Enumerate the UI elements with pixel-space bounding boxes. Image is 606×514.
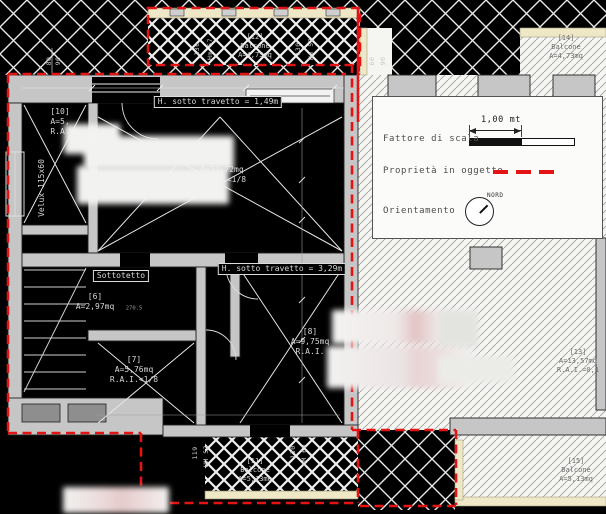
balcony-11-dim-hm60: HM 60 <box>300 444 308 466</box>
dim-90-mid: 90 <box>379 57 387 66</box>
legend-property-label: Proprietà in oggetto <box>383 166 503 176</box>
red-dash-icon <box>516 170 531 174</box>
balcony-12-dim-130-right: 130 <box>294 42 302 55</box>
h-travetto-label-1: H. sotto travetto = 1,49m <box>154 96 282 108</box>
redaction-blur-3 <box>77 166 229 204</box>
room-8-ra: R.A.I. <box>291 347 330 357</box>
room-8-label: [8] A=9,75mq R.A.I. <box>291 327 330 357</box>
room-10-id: [10] <box>50 107 69 117</box>
room-6-label: [6] A=2,97mq <box>76 292 115 312</box>
dim-80: 80 <box>45 57 53 66</box>
balcony-11-label: [11] Balcone A=5,13mq <box>238 457 272 483</box>
balcony-11-area <box>205 437 358 499</box>
red-dash-icon <box>493 170 508 174</box>
legend-scale-arrow <box>469 130 521 131</box>
balcony-14-label: [14] Balcone A=4,73mq <box>549 34 583 60</box>
room-13-id: [13] <box>557 348 599 357</box>
balcony-14-id: [14] <box>549 34 583 43</box>
arrow-right-icon <box>514 128 521 134</box>
balcony-12-label: [12] Balcone A=4,73mq <box>238 33 272 59</box>
redaction-blur-8 <box>63 487 169 513</box>
scale-bar <box>469 138 575 146</box>
legend-scale-label: Fattore di scala <box>383 134 479 144</box>
balcony-11-area: A=5,13mq <box>238 474 272 483</box>
wall-dimension-label: 270.5 <box>126 306 143 313</box>
balcony-12-name: Balcone <box>238 42 272 51</box>
legend-extension-tick-right <box>521 125 522 137</box>
balcony-11-dim-119: 119 <box>191 446 199 459</box>
sottotetto-label: Sottotetto <box>93 270 149 282</box>
h-travetto-label-2: H. sotto travetto = 3,29m <box>218 263 346 275</box>
legend-panel: 1,00 mt Fattore di scala Proprietà in og… <box>372 96 603 239</box>
redaction-blur-7 <box>438 356 514 383</box>
balcony-15-name: Balcone <box>559 466 593 475</box>
balcony-15-area: A=5,13mq <box>559 474 593 483</box>
floor-plan-screenshot: [10] A=5, R.A. Velux 115x60 80 90 H. sot… <box>0 0 606 514</box>
balcony-12-area: A=4,73mq <box>238 50 272 59</box>
balcony-15-label: [15] Balcone A=5,13mq <box>559 457 593 483</box>
room-7-area: A=5,76mq <box>110 365 158 375</box>
compass-icon <box>465 197 494 226</box>
terrace-crosshatch <box>358 430 455 510</box>
room-8-id: [8] <box>291 327 330 337</box>
room-13-label: [13] A=13,57mq R.A.I.=0,1 <box>557 348 599 374</box>
red-dash-icon <box>539 170 554 174</box>
balcony-14-name: Balcone <box>549 43 583 52</box>
dim-60: 60 <box>368 57 376 66</box>
compass-needle <box>479 204 488 213</box>
legend-red-dash-sample <box>493 170 554 174</box>
legend-scale-value: 1,00 mt <box>481 115 521 125</box>
balcony-12-id: [12] <box>238 33 272 42</box>
room-7-ra: R.A.I.<1/8 <box>110 375 158 385</box>
redaction-blur-6 <box>438 311 478 347</box>
room-6-area: A=2,97mq <box>76 302 115 312</box>
legend-north-label: NORD <box>487 192 503 199</box>
velux-label: Velux 115x60 <box>37 159 47 217</box>
balcony-11-id: [11] <box>238 457 272 466</box>
room-13-area: A=13,57mq <box>557 357 599 366</box>
balcony-11-name: Balcone <box>238 466 272 475</box>
legend-orientation-label: Orientamento <box>383 206 455 216</box>
room-8-area: A=9,75mq <box>291 337 330 347</box>
balcony-11-dim-hm53: HM 53 <box>202 445 210 467</box>
balcony-15-id: [15] <box>559 457 593 466</box>
room-13-ra: R.A.I.=0,1 <box>557 365 599 374</box>
balcony-11-dim-130: 130 <box>289 445 297 458</box>
dim-90-left: 90 <box>54 57 62 66</box>
balcony-12-dim-130-left: 130 <box>193 42 201 55</box>
arrow-left-icon <box>469 128 476 134</box>
floor-plan-drawing <box>0 0 606 514</box>
balcony-12-dim-hm57-right: Hm 57 <box>307 38 315 60</box>
balcony-14-area: A=4,73mq <box>549 51 583 60</box>
room-7-id: [7] <box>110 355 158 365</box>
room-7-label: [7] A=5,76mq R.A.I.<1/8 <box>110 355 158 385</box>
balcony-12-dim-hm57-left: Hm 57 <box>206 38 214 60</box>
room-6-id: [6] <box>76 292 115 302</box>
redaction-blur-2 <box>84 136 234 170</box>
